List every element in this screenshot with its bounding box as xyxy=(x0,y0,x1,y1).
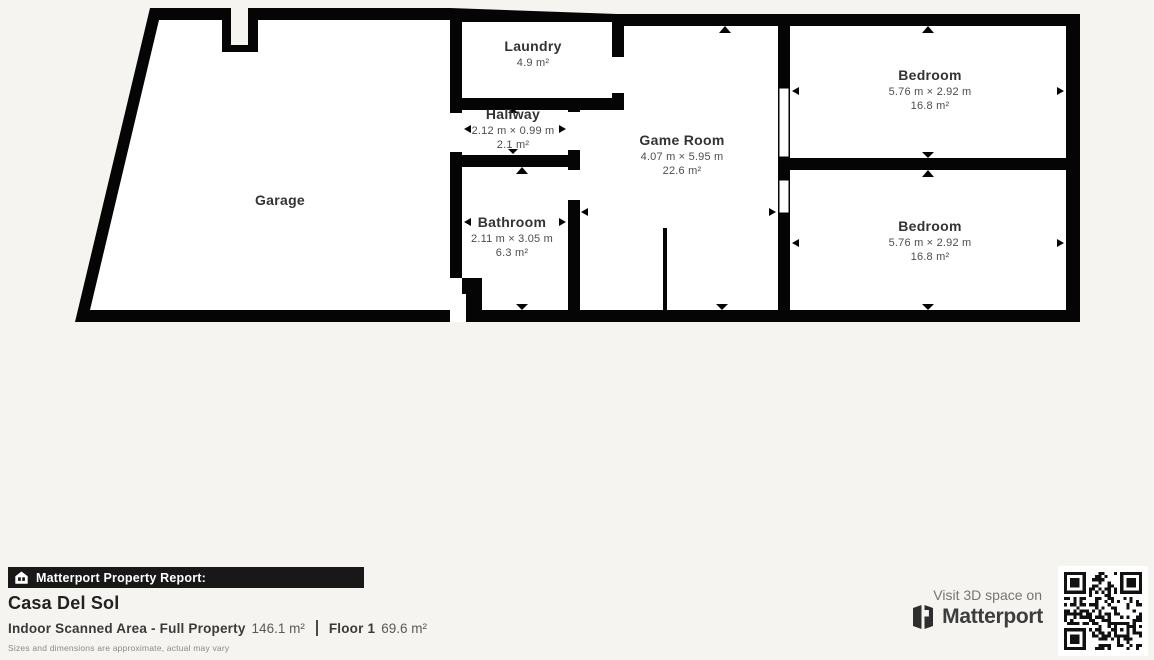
room-area: 4.9 m² xyxy=(504,56,561,70)
report-title-bar: Matterport Property Report: xyxy=(8,567,364,588)
floor-label: Floor 1 xyxy=(329,621,375,636)
matterport-floorplan-report: Garage Laundry 4.9 m² Hallway 2.12 m × 0… xyxy=(0,0,1154,660)
room-area: 2.1 m² xyxy=(472,138,555,152)
qr-code xyxy=(1064,572,1142,650)
room-dimensions: 5.76 m × 2.92 m xyxy=(889,85,972,99)
garage-top-recess xyxy=(231,0,248,45)
wall-bathroom-lower-left xyxy=(466,290,482,322)
scanned-area-label: Indoor Scanned Area - Full Property xyxy=(8,621,246,636)
room-area: 6.3 m² xyxy=(471,246,553,260)
room-dimensions: 2.12 m × 0.99 m xyxy=(472,124,555,138)
disclaimer-text: Sizes and dimensions are approximate, ac… xyxy=(8,643,229,653)
room-area: 16.8 m² xyxy=(889,250,972,264)
room-label-bedroom-top: Bedroom 5.76 m × 2.92 m 16.8 m² xyxy=(889,67,972,113)
divider xyxy=(316,620,318,636)
door-bathroom-gameroom xyxy=(568,170,580,200)
room-name: Bedroom xyxy=(889,67,972,85)
door-hallway-gameroom xyxy=(568,112,580,150)
room-label-bedroom-bottom: Bedroom 5.76 m × 2.92 m 16.8 m² xyxy=(889,218,972,264)
matterport-logo: Matterport xyxy=(911,604,1043,630)
window-bedroom-bottom xyxy=(779,180,789,213)
door-garage-hallway xyxy=(450,113,462,152)
room-name: Game Room xyxy=(639,132,724,150)
matterport-mark-icon xyxy=(911,604,935,630)
room-area: 22.6 m² xyxy=(639,164,724,178)
room-label-bathroom: Bathroom 2.11 m × 3.05 m 6.3 m² xyxy=(471,214,553,260)
area-summary-line: Indoor Scanned Area - Full Property 146.… xyxy=(8,618,427,638)
house-icon xyxy=(15,571,28,584)
room-label-laundry: Laundry 4.9 m² xyxy=(504,38,561,70)
room-name: Garage xyxy=(255,192,305,210)
door-laundry-gameroom xyxy=(612,57,624,93)
room-dimensions: 5.76 m × 2.92 m xyxy=(889,236,972,250)
room-dimensions: 4.07 m × 5.95 m xyxy=(639,150,724,164)
property-name: Casa Del Sol xyxy=(8,593,119,614)
report-title: Matterport Property Report: xyxy=(36,571,206,585)
scanned-area-value: 146.1 m² xyxy=(252,621,305,636)
room-label-gameroom: Game Room 4.07 m × 5.95 m 22.6 m² xyxy=(639,132,724,178)
window-symbols xyxy=(779,88,789,213)
qr-code-card xyxy=(1058,566,1148,656)
room-area: 16.8 m² xyxy=(889,99,972,113)
window-bedroom-top xyxy=(779,88,789,157)
room-label-garage: Garage xyxy=(255,192,305,210)
room-name: Hallway xyxy=(472,106,555,124)
room-name: Laundry xyxy=(504,38,561,56)
visit-3d-label: Visit 3D space on xyxy=(933,587,1042,603)
floor-value: 69.6 m² xyxy=(381,621,427,636)
room-label-hallway: Hallway 2.12 m × 0.99 m 2.1 m² xyxy=(472,106,555,152)
wall-stub-gameroom xyxy=(663,228,667,312)
matterport-wordmark: Matterport xyxy=(942,605,1043,629)
floorplan-drawing xyxy=(0,0,1154,345)
room-dimensions: 2.11 m × 3.05 m xyxy=(471,232,553,246)
room-name: Bedroom xyxy=(889,218,972,236)
room-name: Bathroom xyxy=(471,214,553,232)
